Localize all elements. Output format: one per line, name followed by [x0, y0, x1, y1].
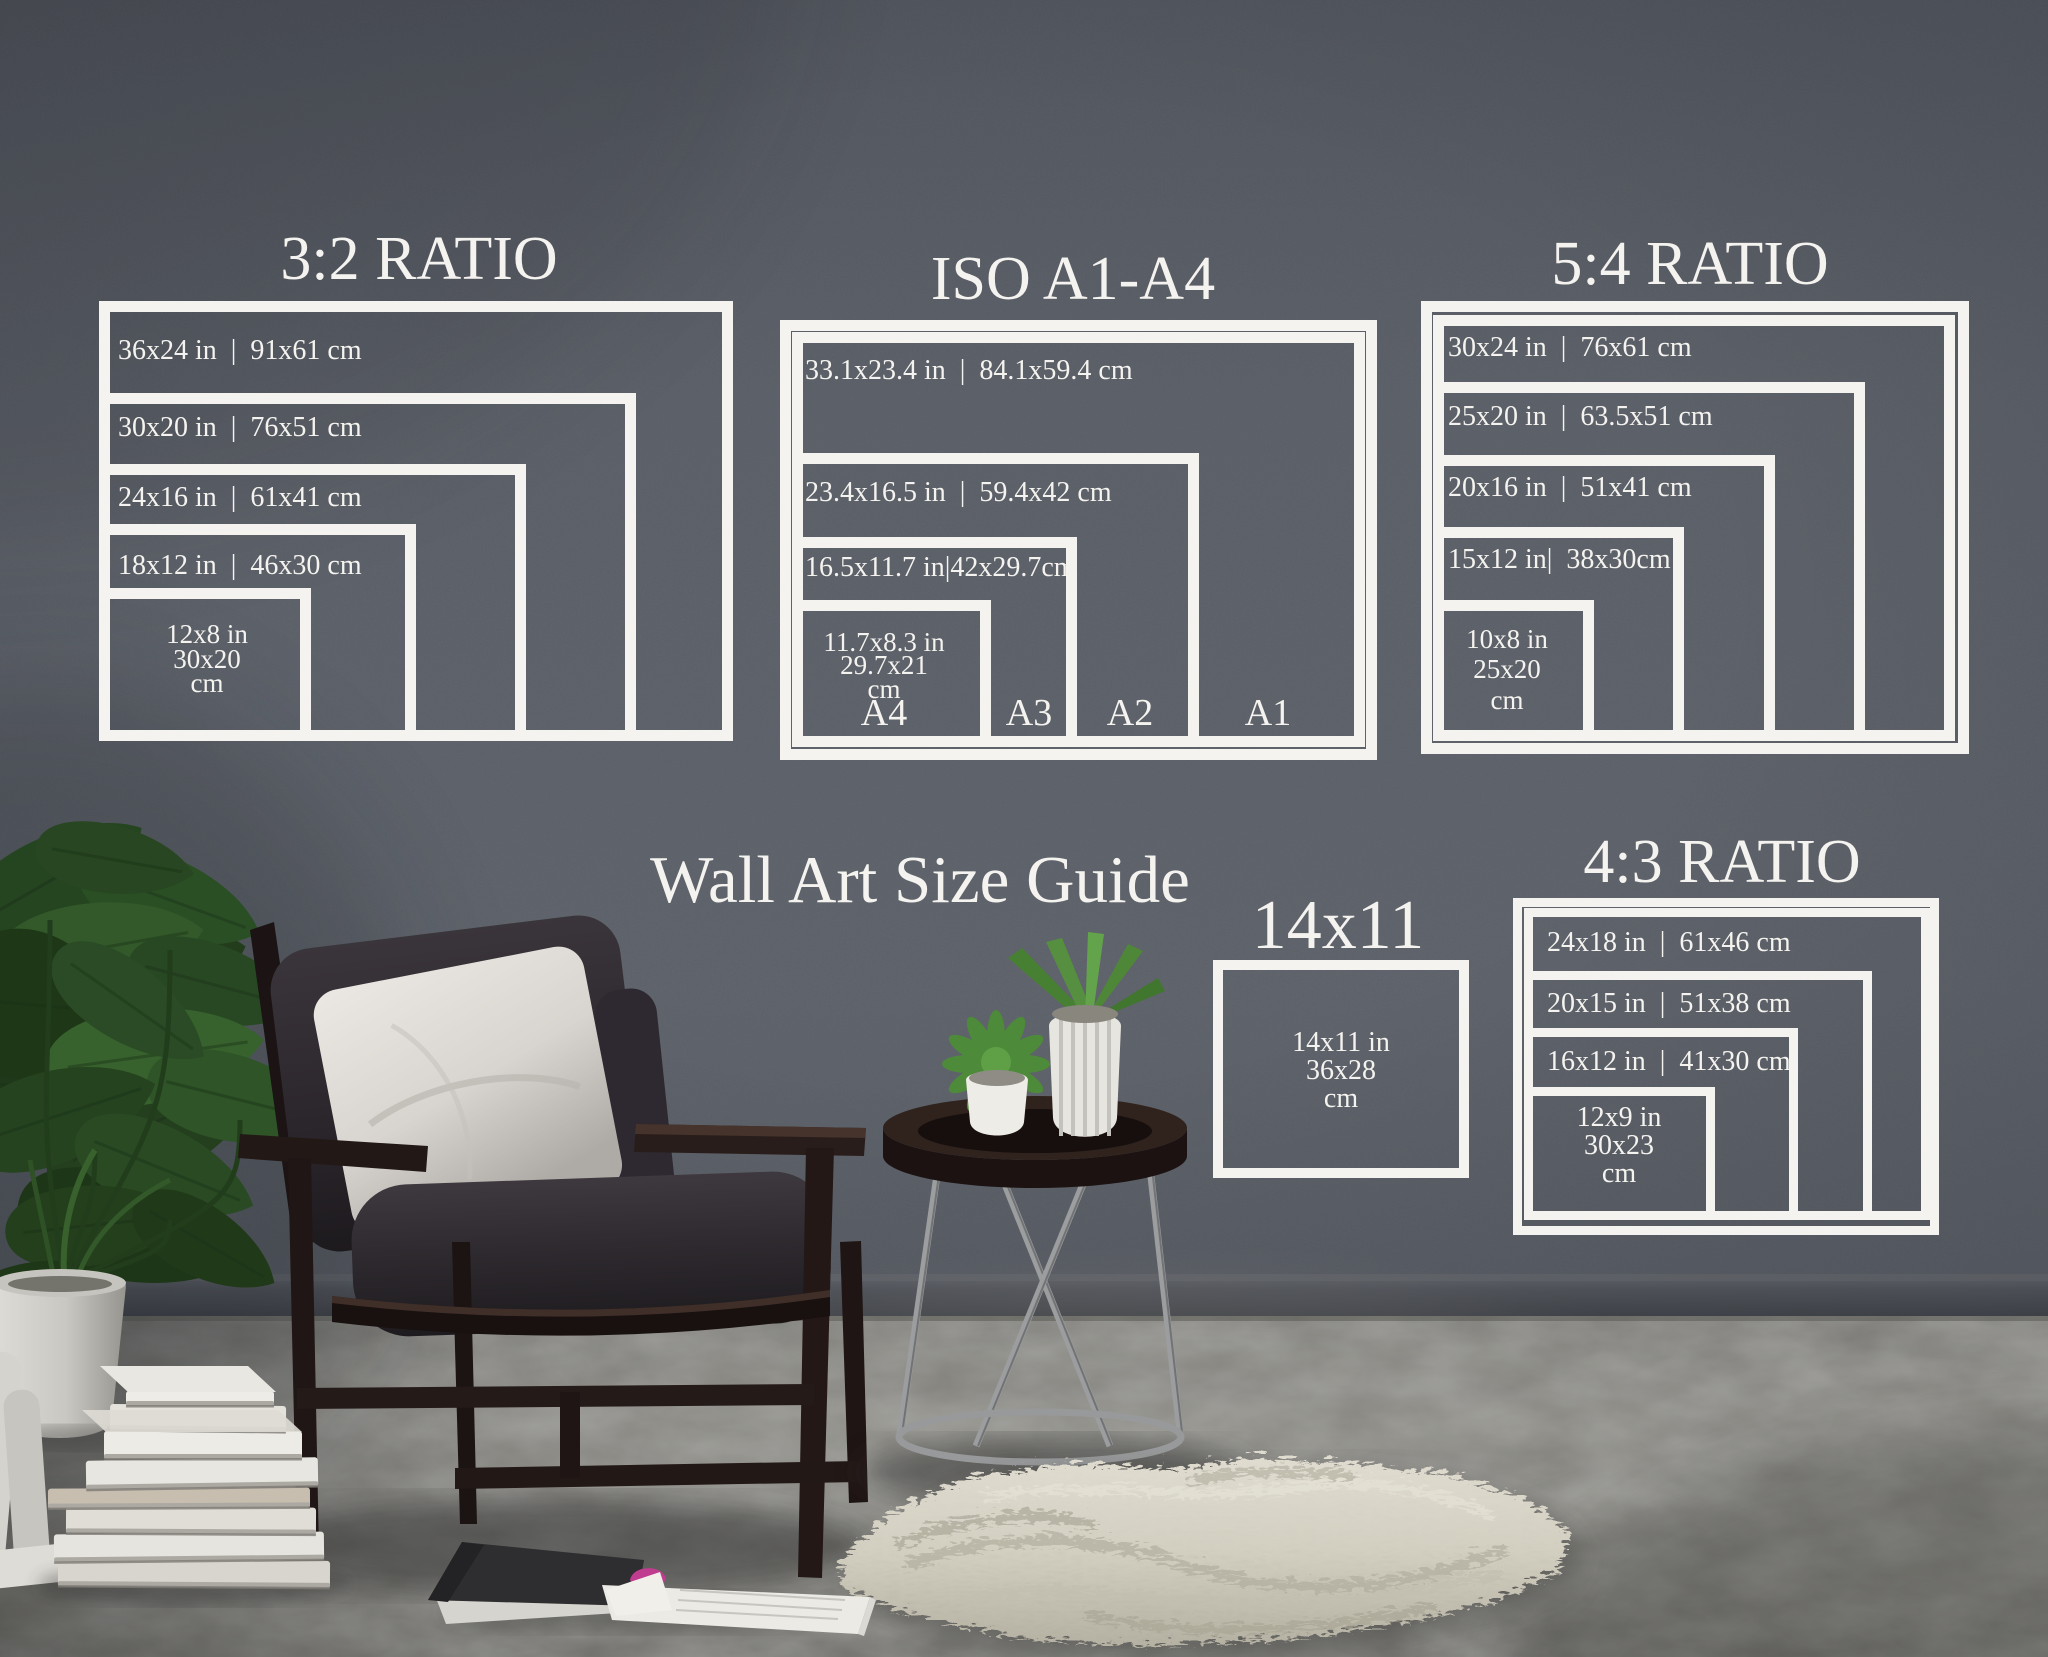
- svg-text:16x12 in | 41x30 cm: 16x12 in | 41x30 cm: [1547, 1046, 1791, 1077]
- svg-text:4:3 RATIO: 4:3 RATIO: [1583, 828, 1860, 896]
- svg-text:3:2 RATIO: 3:2 RATIO: [280, 225, 557, 293]
- svg-text:A1: A1: [1245, 692, 1291, 734]
- svg-text:Wall Art Size Guide: Wall Art Size Guide: [650, 843, 1190, 917]
- svg-text:20x15 in | 51x38 cm: 20x15 in | 51x38 cm: [1547, 988, 1791, 1019]
- svg-text:25x20 in | 63.5x51 cm: 25x20 in | 63.5x51 cm: [1448, 401, 1713, 432]
- svg-text:30x24 in | 76x61 cm: 30x24 in | 76x61 cm: [1448, 332, 1692, 363]
- svg-text:A3: A3: [1006, 692, 1052, 734]
- svg-text:20x16 in | 51x41 cm: 20x16 in | 51x41 cm: [1448, 472, 1692, 503]
- svg-text:24x18 in | 61x46 cm: 24x18 in | 61x46 cm: [1547, 927, 1791, 958]
- svg-text:23.4x16.5 in | 59.4x42 cm: 23.4x16.5 in | 59.4x42 cm: [805, 477, 1112, 508]
- svg-text:15x12 in| 38x30cm: 15x12 in| 38x30cm: [1448, 544, 1671, 575]
- svg-text:36x24 in | 91x61 cm: 36x24 in | 91x61 cm: [118, 335, 362, 366]
- svg-text:14x11 in: 14x11 in: [1292, 1027, 1390, 1058]
- svg-text:ISO A1-A4: ISO A1-A4: [931, 245, 1215, 313]
- svg-text:16.5x11.7 in|42x29.7cm: 16.5x11.7 in|42x29.7cm: [805, 552, 1076, 583]
- svg-text:cm: cm: [1324, 1083, 1358, 1114]
- svg-text:14x11: 14x11: [1252, 887, 1424, 964]
- svg-text:10x8 in: 10x8 in: [1466, 624, 1548, 654]
- svg-text:cm: cm: [1602, 1158, 1636, 1189]
- svg-text:A4: A4: [861, 692, 907, 734]
- svg-text:A2: A2: [1107, 692, 1153, 734]
- svg-text:cm: cm: [191, 668, 224, 698]
- svg-text:5:4 RATIO: 5:4 RATIO: [1551, 230, 1828, 298]
- svg-text:cm: cm: [1491, 685, 1524, 715]
- svg-text:30x23: 30x23: [1584, 1130, 1654, 1161]
- svg-text:18x12 in | 46x30 cm: 18x12 in | 46x30 cm: [118, 550, 362, 581]
- svg-text:24x16 in | 61x41 cm: 24x16 in | 61x41 cm: [118, 482, 362, 513]
- svg-text:36x28: 36x28: [1306, 1055, 1376, 1086]
- svg-text:12x9 in: 12x9 in: [1577, 1102, 1662, 1133]
- svg-text:33.1x23.4 in | 84.1x59.4 cm: 33.1x23.4 in | 84.1x59.4 cm: [805, 355, 1133, 386]
- svg-text:25x20: 25x20: [1473, 654, 1541, 684]
- svg-text:30x20 in | 76x51 cm: 30x20 in | 76x51 cm: [118, 412, 362, 443]
